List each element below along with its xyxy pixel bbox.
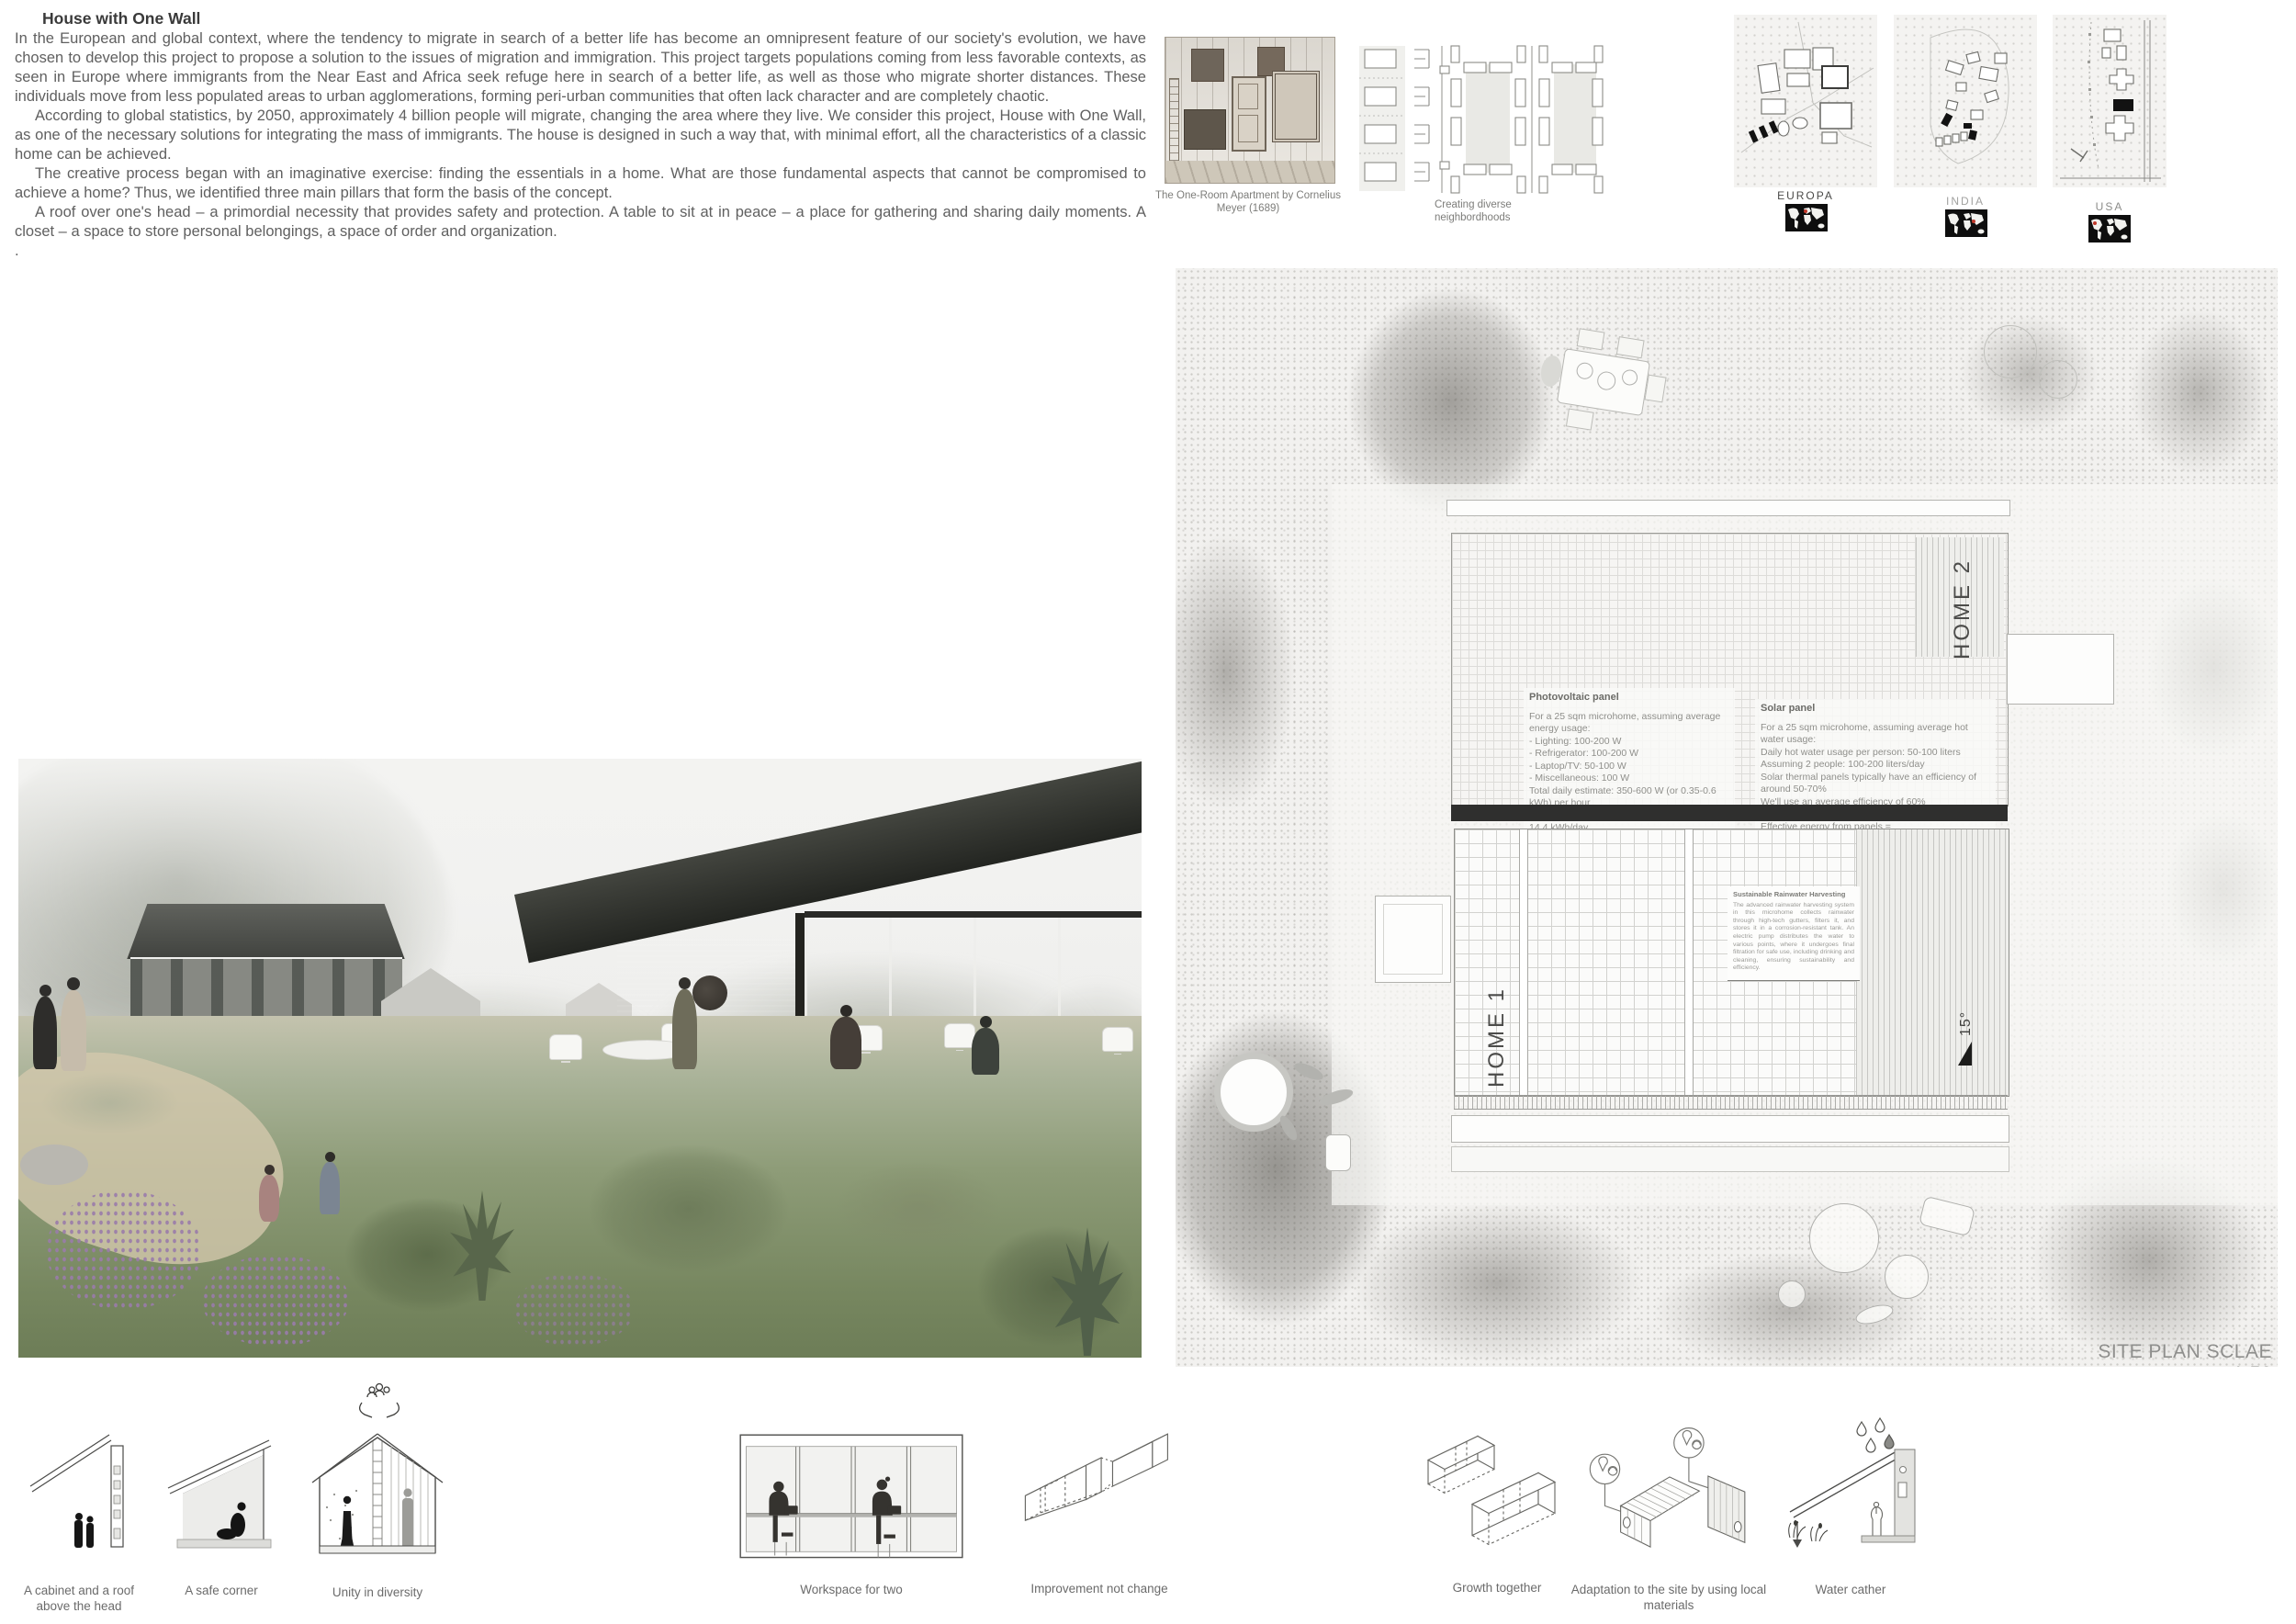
- etching-door: [1232, 76, 1266, 152]
- unity-diversity-diagram: [299, 1382, 456, 1575]
- chair: [1577, 328, 1605, 350]
- round-window: [692, 976, 727, 1010]
- concept-caption: A safe corner: [185, 1583, 258, 1598]
- lavender-patch: [46, 1190, 202, 1310]
- hands-people-icon: [360, 1384, 400, 1418]
- slope-arrow-icon: [1958, 1042, 1972, 1066]
- rainwater-body: The advanced rainwater harvesting system…: [1733, 902, 1854, 972]
- concept-caption: A cabinet and a roof above the head: [6, 1583, 152, 1614]
- outdoor-chair: [944, 1023, 975, 1048]
- rainwater-title: Sustainable Rainwater Harvesting: [1733, 891, 1854, 899]
- person-silhouette: [61, 977, 86, 1071]
- intro-paragraph-2: According to global statistics, by 2050,…: [15, 107, 1146, 164]
- home1-corrugated-roof: [1856, 829, 2009, 1096]
- left-house-roof: [121, 904, 411, 959]
- cabinet-roof-diagram: [28, 1422, 129, 1573]
- interior-wall: [1519, 829, 1528, 1096]
- safe-corner-diagram: [166, 1422, 276, 1573]
- home2-label: HOME 2: [1950, 549, 1975, 660]
- intro-trailing-dot: .: [15, 242, 1146, 261]
- plant-pot-symbol: [1778, 1280, 1806, 1308]
- slope-label: 15°: [1958, 994, 1975, 1036]
- exterior-render: [18, 759, 1142, 1358]
- outdoor-chair: [1102, 1027, 1133, 1052]
- concept-caption: Adaptation to the site by using local ma…: [1568, 1582, 1770, 1613]
- world-map-icon: [2088, 215, 2131, 242]
- intro-paragraph-3: The creative process began with an imagi…: [15, 164, 1146, 203]
- pv-line: - Miscellaneous: 100 W: [1529, 773, 1729, 785]
- location-material-icon: [1674, 1428, 1704, 1458]
- terrace-band: [1451, 1115, 2009, 1143]
- etching-floor: [1165, 161, 1334, 183]
- concept-caption: Growth together: [1453, 1580, 1542, 1596]
- map-sketch-europa-drawing: [1734, 15, 1877, 187]
- concept-adaptation: Adaptation to the site by using local ma…: [1568, 1416, 1770, 1613]
- neighborhoods-diagram: [1356, 42, 1605, 197]
- garden-furniture-cluster: [1745, 1178, 1993, 1352]
- etching-one-room-apartment: [1165, 37, 1335, 184]
- pv-line: For a 25 sqm microhome, assuming average…: [1529, 711, 1729, 736]
- home2-plan: Photovoltaic panel For a 25 sqm microhom…: [1451, 533, 2009, 806]
- etching-door-panel: [1238, 84, 1258, 109]
- solar-line: Daily hot water usage per person: 50-100…: [1761, 747, 1990, 760]
- concept-caption: Unity in diversity: [332, 1585, 422, 1600]
- concept-cabinet-roof: A cabinet and a roof above the head: [6, 1422, 152, 1614]
- map-sketch-usa: [2053, 15, 2167, 187]
- site-plan: Photovoltaic panel For a 25 sqm microhom…: [1176, 268, 2278, 1367]
- map-marker-india: [1972, 220, 1975, 223]
- interior-wall: [1684, 829, 1694, 1096]
- intro-paragraph-4: A roof over one's head – a primordial ne…: [15, 203, 1146, 242]
- map-label-usa: USA: [2053, 200, 2167, 213]
- water-diagram: [1777, 1416, 1924, 1573]
- hammock-symbol: [1853, 1302, 1895, 1328]
- concept-growth: Growth together: [1405, 1422, 1589, 1596]
- solar-line: For a 25 sqm microhome, assuming average…: [1761, 722, 1990, 747]
- tree-symbol: [2039, 360, 2077, 399]
- facade-tick-band: [1454, 1095, 2008, 1110]
- lounger: [1325, 1134, 1351, 1171]
- tree-symbol: [1984, 325, 2037, 378]
- etching-caption: The One-Room Apartment by Cornelius Meye…: [1154, 189, 1343, 215]
- etching-ladder: [1169, 78, 1179, 164]
- map-label-europa: EUROPA: [1734, 189, 1877, 202]
- annex-outline: [2007, 634, 2114, 705]
- concept-caption: Workspace for two: [800, 1582, 903, 1597]
- concept-unity-diversity: Unity in diversity: [295, 1382, 460, 1600]
- photovoltaic-title: Photovoltaic panel: [1529, 692, 1729, 705]
- concept-safe-corner: A safe corner: [148, 1422, 295, 1598]
- etching-door-panel-2: [1238, 115, 1258, 142]
- rainwater-note: Sustainable Rainwater Harvesting The adv…: [1728, 886, 1860, 981]
- bench-symbol: [1919, 1196, 1975, 1237]
- map-sketch-india: [1894, 15, 2037, 187]
- world-map-icon: [1785, 204, 1828, 231]
- home1-label: HOME 1: [1484, 968, 1510, 1088]
- lavender-patch: [514, 1273, 634, 1347]
- etching-upper-cabinet: [1191, 49, 1224, 82]
- deck-outline: [1375, 896, 1451, 983]
- rain-drops-icon: [1857, 1418, 1894, 1452]
- scale-label: SITE PLAN SCLAE 1:50: [2094, 1341, 2272, 1367]
- map-marker-usa: [2093, 221, 2097, 225]
- solar-title: Solar panel: [1761, 703, 1990, 716]
- concept-water: Water cather: [1768, 1416, 1933, 1597]
- round-table-symbol: [1809, 1203, 1879, 1273]
- home1-plan: Sustainable Rainwater Harvesting The adv…: [1454, 829, 2009, 1097]
- adaptation-diagram: [1577, 1416, 1761, 1573]
- round-table-symbol: [1885, 1255, 1929, 1299]
- deck-inner-line: [1383, 904, 1443, 975]
- map-sketch-india-drawing: [1894, 15, 2037, 187]
- intro-text-block: House with One Wall In the European and …: [15, 7, 1146, 261]
- outdoor-chair: [549, 1034, 582, 1060]
- concept-improvement: Improvement not change: [989, 1429, 1210, 1596]
- concept-caption: Improvement not change: [1030, 1581, 1167, 1596]
- outdoor-dining-group: [1526, 322, 1680, 453]
- workspace-diagram: [737, 1426, 966, 1573]
- child-silhouette: [320, 1152, 340, 1214]
- map-label-india: INDIA: [1894, 195, 2037, 208]
- solar-line: Assuming 2 people: 100-200 liters/day: [1761, 759, 1990, 772]
- concept-workspace: Workspace for two: [732, 1426, 971, 1597]
- pv-line: - Lighting: 100-200 W: [1529, 736, 1729, 749]
- map-sketch-usa-drawing: [2053, 15, 2167, 187]
- person-silhouette: [672, 977, 697, 1069]
- seated-person-silhouette: [830, 1005, 861, 1069]
- map-sketch-europa: [1734, 15, 1877, 187]
- lavender-patch: [202, 1255, 349, 1347]
- pv-line: - Refrigerator: 100-200 W: [1529, 748, 1729, 761]
- one-wall: [1451, 805, 2008, 821]
- neighborhoods-caption: Creating diverse neighbordhoods: [1435, 198, 1572, 224]
- improvement-diagram: [1012, 1429, 1187, 1572]
- shrub: [560, 1126, 817, 1291]
- etching-stove-frame: [1272, 71, 1320, 142]
- rock: [20, 1145, 88, 1185]
- concept-caption: Water cather: [1816, 1582, 1886, 1597]
- page-title: House with One Wall: [42, 7, 1146, 29]
- roof-eave-strip: [1446, 500, 2010, 516]
- world-map-icon: [1945, 209, 1987, 237]
- growth-diagram: [1419, 1422, 1575, 1571]
- solar-line: Solar thermal panels typically have an e…: [1761, 772, 1990, 796]
- person-silhouette: [33, 985, 57, 1069]
- chair: [1644, 375, 1666, 403]
- location-material-icon: [1590, 1454, 1619, 1483]
- etching-chest: [1184, 109, 1226, 150]
- chair: [1566, 408, 1594, 430]
- intro-paragraph-1: In the European and global context, wher…: [15, 29, 1146, 107]
- seated-child-silhouette: [972, 1016, 999, 1075]
- chair: [1616, 336, 1645, 358]
- pv-line: - Laptop/TV: 50-100 W: [1529, 761, 1729, 773]
- presentation-board: House with One Wall In the European and …: [0, 0, 2296, 1624]
- child-silhouette: [259, 1165, 279, 1222]
- shrub: [18, 1062, 202, 1145]
- terrace-band-2: [1451, 1146, 2009, 1172]
- map-marker-europa: [1804, 209, 1807, 213]
